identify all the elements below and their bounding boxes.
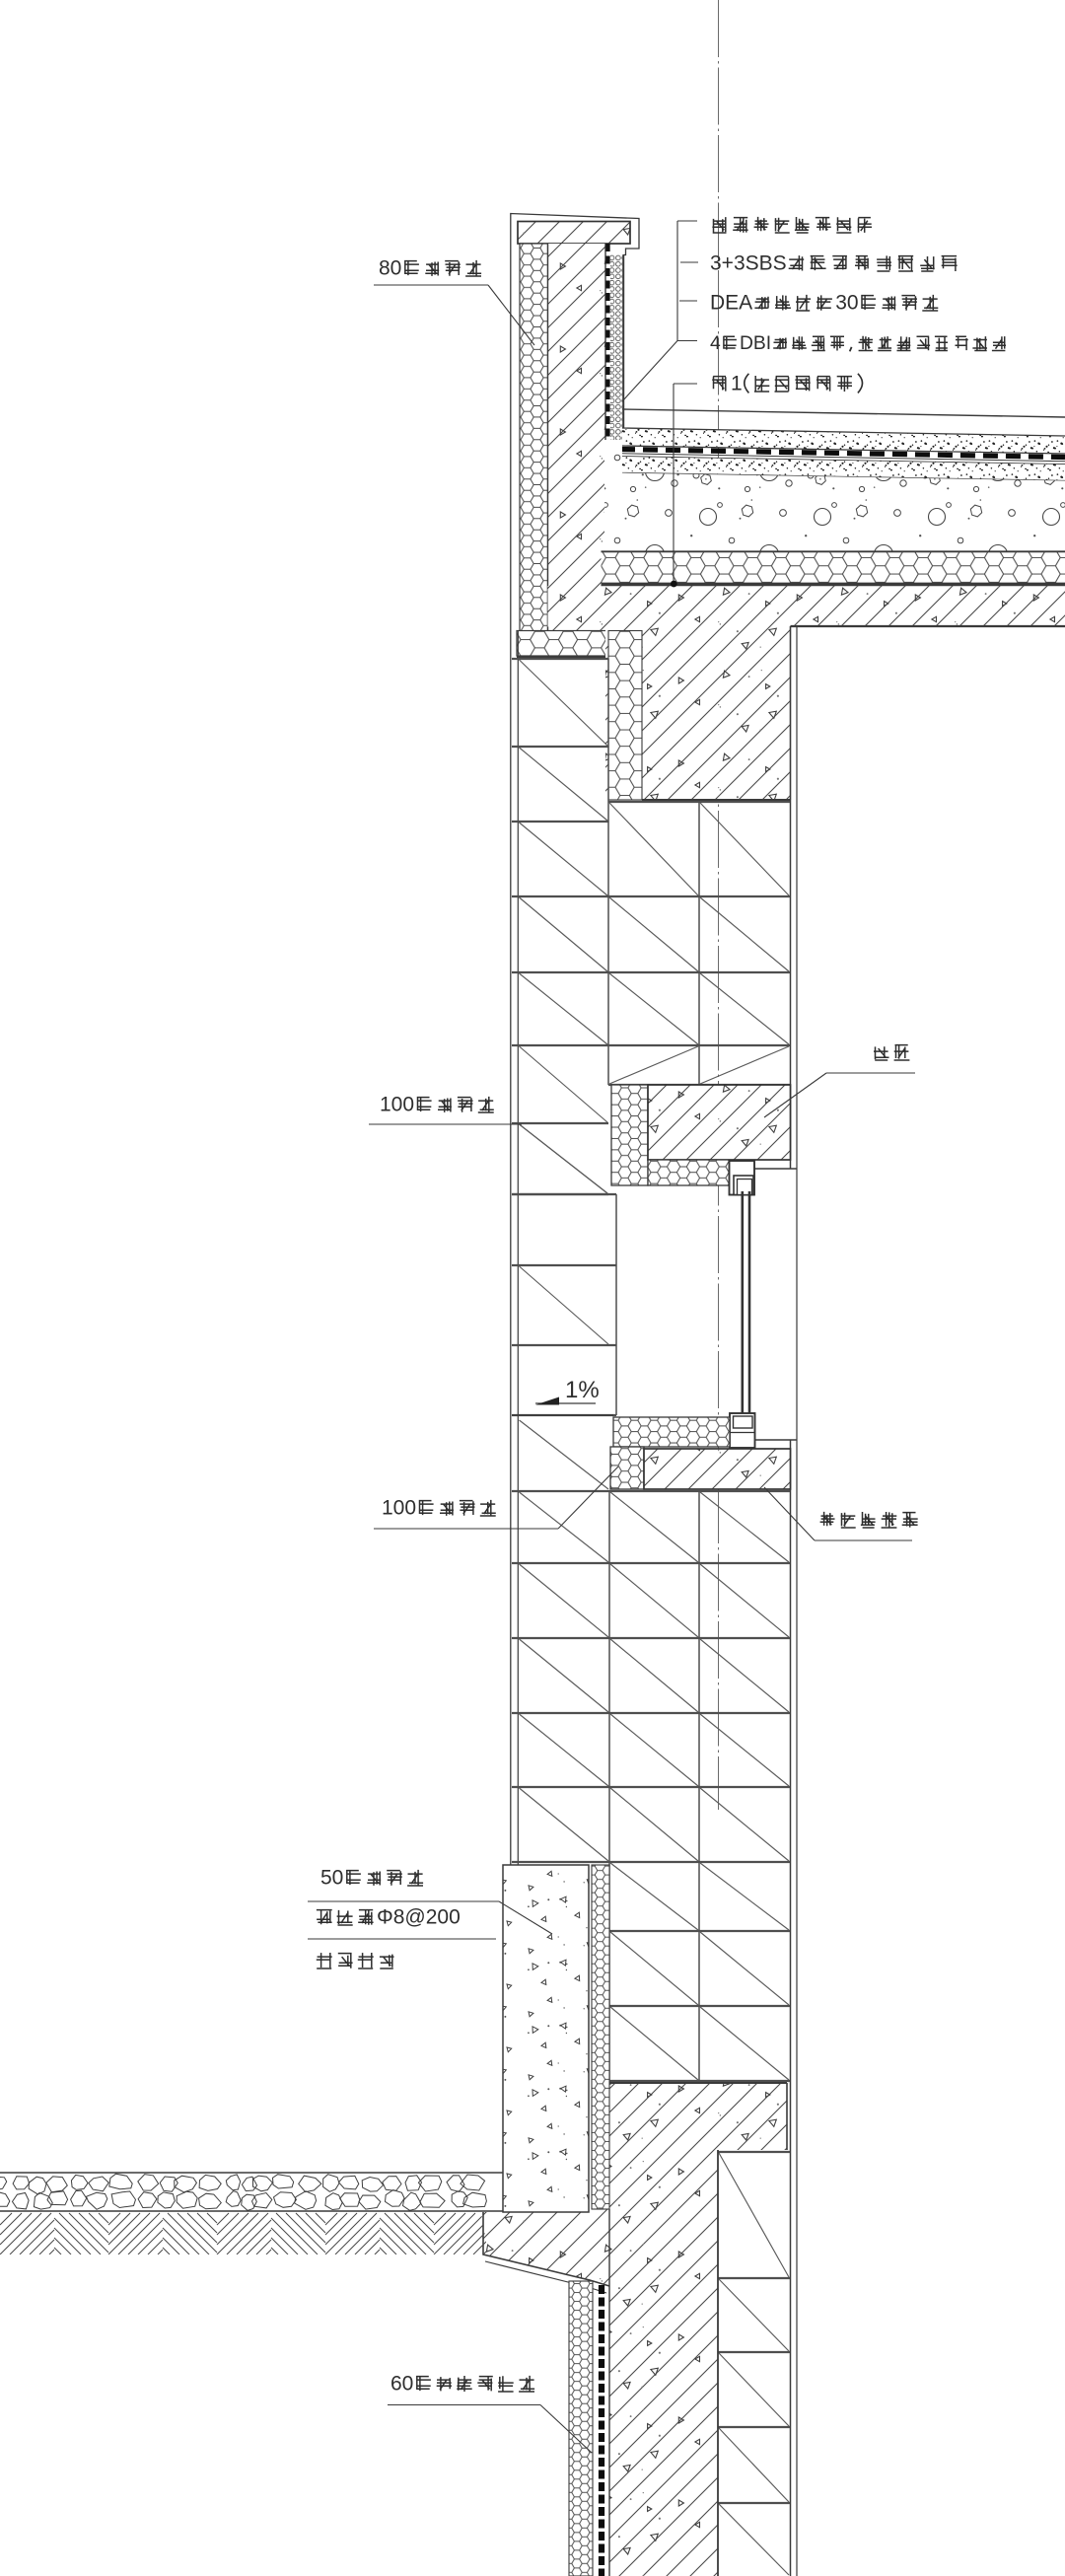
svg-text:DBI: DBI xyxy=(740,333,771,354)
svg-text:DEA: DEA xyxy=(710,291,752,314)
svg-text:50: 50 xyxy=(320,1866,343,1889)
svg-text:3+3SBS: 3+3SBS xyxy=(710,251,787,274)
svg-text:100: 100 xyxy=(380,1093,414,1115)
svg-text:60: 60 xyxy=(390,2372,413,2395)
svg-text:100: 100 xyxy=(382,1496,416,1519)
svg-text:1%: 1% xyxy=(565,1377,600,1403)
svg-text:1: 1 xyxy=(731,372,743,394)
svg-text:Φ8@200: Φ8@200 xyxy=(377,1905,461,1928)
svg-text:4: 4 xyxy=(710,333,721,354)
svg-text:80: 80 xyxy=(379,256,401,279)
svg-text:30: 30 xyxy=(835,291,858,314)
